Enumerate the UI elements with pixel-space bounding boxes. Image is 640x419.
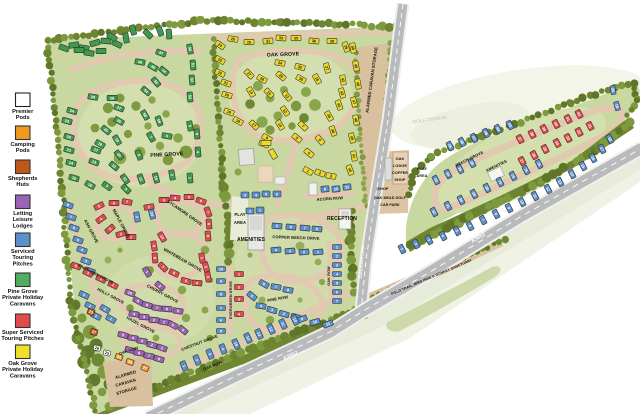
svg-text:CAR PARK: CAR PARK <box>380 203 400 207</box>
svg-text:Super Serviced: Super Serviced <box>2 330 44 336</box>
svg-text:EVERGREEN DRIVE: EVERGREEN DRIVE <box>229 281 233 319</box>
svg-text:Shepherds: Shepherds <box>8 176 37 182</box>
svg-text:SHOP: SHOP <box>394 178 406 182</box>
svg-text:PLAY: PLAY <box>417 167 428 171</box>
svg-text:AREA: AREA <box>234 220 246 225</box>
svg-text:Private Holiday: Private Holiday <box>2 295 44 301</box>
svg-text:Premier: Premier <box>12 109 34 115</box>
svg-text:7: 7 <box>336 298 338 303</box>
svg-text:Touring: Touring <box>12 255 33 261</box>
svg-text:RECEPTION: RECEPTION <box>327 216 357 222</box>
svg-text:PLAY: PLAY <box>234 212 245 217</box>
svg-text:50: 50 <box>187 46 193 51</box>
svg-text:Pitches: Pitches <box>13 261 33 267</box>
svg-text:Caravans: Caravans <box>10 373 36 379</box>
svg-text:10: 10 <box>219 266 223 271</box>
svg-text:OAK MEAD GOLF: OAK MEAD GOLF <box>374 196 407 200</box>
svg-text:50: 50 <box>350 45 356 50</box>
svg-text:AMENITIES: AMENITIES <box>237 237 266 243</box>
svg-text:OAK GROVE: OAK GROVE <box>267 51 300 58</box>
svg-text:10: 10 <box>334 186 339 191</box>
svg-text:OAK: OAK <box>396 157 405 161</box>
svg-text:7: 7 <box>220 305 222 310</box>
svg-text:OAK ROW: OAK ROW <box>327 266 331 286</box>
svg-text:Private Holiday: Private Holiday <box>2 367 44 373</box>
svg-text:Pine Grove: Pine Grove <box>8 289 38 295</box>
svg-text:7: 7 <box>304 225 307 230</box>
svg-text:Camping: Camping <box>11 142 36 148</box>
svg-text:Oak Grove: Oak Grove <box>8 361 37 367</box>
svg-text:Touring Pitches: Touring Pitches <box>1 336 44 342</box>
svg-text:COFFEE: COFFEE <box>392 171 408 175</box>
svg-text:Letting: Letting <box>13 211 32 217</box>
svg-text:AREA: AREA <box>416 174 427 178</box>
svg-text:Pods: Pods <box>16 115 30 121</box>
svg-text:SHOP: SHOP <box>377 187 389 191</box>
svg-text:Leisure: Leisure <box>13 217 33 223</box>
svg-text:Pods: Pods <box>16 148 30 154</box>
svg-text:20: 20 <box>610 87 616 92</box>
svg-text:Huts: Huts <box>16 182 29 188</box>
svg-text:Serviced: Serviced <box>11 249 35 255</box>
svg-text:LODGE: LODGE <box>393 164 407 168</box>
svg-text:Caravans: Caravans <box>10 301 36 307</box>
svg-text:Lodges: Lodges <box>13 223 33 229</box>
